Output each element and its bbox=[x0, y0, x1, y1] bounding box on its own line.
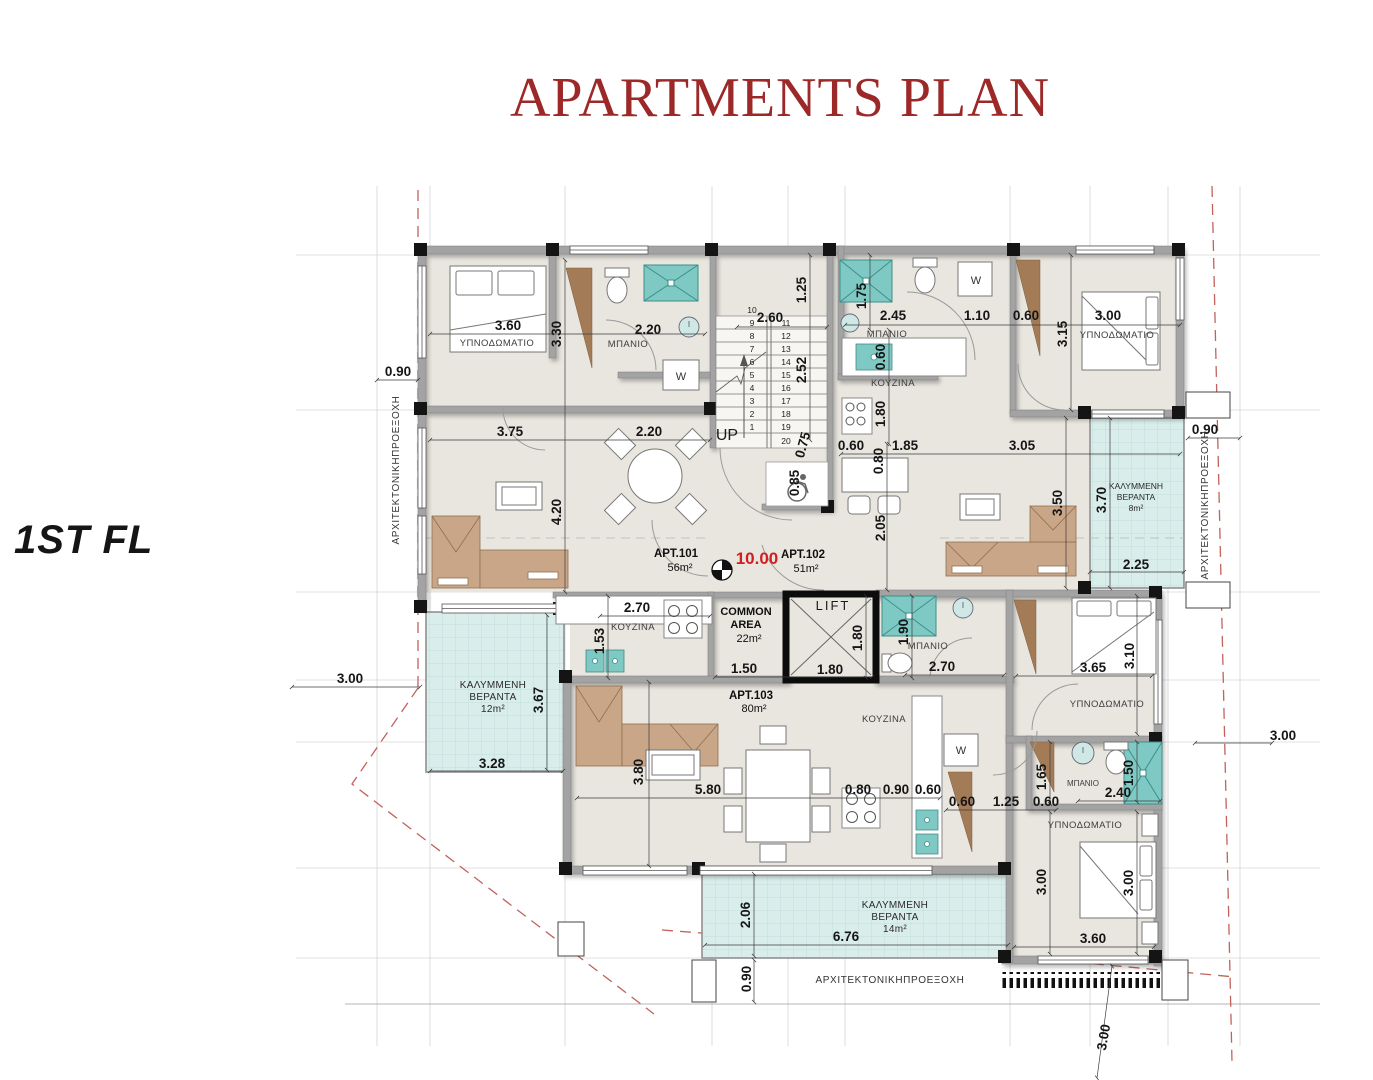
annotation-step: 13 bbox=[781, 344, 791, 354]
annotation-dim: 3.80 bbox=[631, 759, 646, 785]
annotation-room: ΚΟΥΖΙΝΑ bbox=[871, 378, 915, 389]
annotation-dim: 3.00 bbox=[1094, 1023, 1113, 1051]
annotation-dim: 0.60 bbox=[1013, 308, 1039, 323]
annotation-step: 19 bbox=[781, 422, 791, 432]
annotation-step: 4 bbox=[750, 383, 755, 393]
annotation-dim: 0.90 bbox=[385, 364, 411, 379]
projection-hatch-row bbox=[1000, 972, 1160, 988]
annotation-dim: 1.75 bbox=[854, 282, 869, 309]
annotation-aptarea: 80m² bbox=[741, 703, 766, 715]
annotation-step: 3 bbox=[750, 396, 755, 406]
annotation-dim: 1.10 bbox=[964, 308, 990, 323]
annotation-dim: 1.85 bbox=[892, 438, 919, 453]
annotation-dim: 3.30 bbox=[549, 321, 564, 347]
annotation-dim: 1.80 bbox=[850, 625, 865, 651]
annotation-wlabel: W bbox=[956, 745, 967, 757]
annotation-dim: 3.00 bbox=[337, 671, 363, 686]
annotation-dim: 2.52 bbox=[794, 357, 809, 383]
annotation-wlabel: W bbox=[676, 371, 687, 383]
annotation-dim: 1.50 bbox=[731, 661, 757, 676]
annotation-step: 9 bbox=[750, 318, 755, 328]
annotation-dim: 3.67 bbox=[531, 687, 546, 713]
annotation-room: ΚΟΥΖΙΝΑ bbox=[862, 714, 906, 725]
annotation-ver: ΚΑΛΥΜΜΕΝΗ bbox=[460, 680, 526, 691]
annotation-aptarea: 51m² bbox=[793, 563, 818, 575]
annotation-step: 8 bbox=[750, 331, 755, 341]
annotation-proj: ΑΡΧΙΤΕΚΤΟΝΙΚΗΠΡΟΕΞΟΧΗ bbox=[816, 975, 965, 986]
floor-plan-drawing: 3.603.302.200.902.601.252.521.752.451.10… bbox=[0, 0, 1373, 1080]
annotation-dim: 0.60 bbox=[1033, 794, 1059, 809]
annotation-aptarea: 56m² bbox=[667, 562, 692, 574]
annotation-dim: 1.80 bbox=[873, 401, 888, 427]
annotation-step: 7 bbox=[750, 344, 755, 354]
annotation-dim: 0.90 bbox=[739, 966, 754, 992]
annotation-proj: ΑΡΧΙΤΕΚΤΟΝΙΚΗΠΡΟΕΞΟΧΗ bbox=[1200, 431, 1211, 580]
annotation-ver: 14m² bbox=[883, 924, 907, 935]
annotation-wlabel: W bbox=[971, 275, 982, 287]
annotation-dim: 1.65 bbox=[1034, 763, 1049, 790]
annotation-dim: 0.60 bbox=[838, 438, 864, 453]
annotation-red: 10.00 bbox=[736, 549, 779, 568]
annotation-dim: 6.76 bbox=[833, 929, 860, 944]
annotation-ver: ΒΕΡΑΝΤΑ bbox=[871, 912, 918, 923]
annotation-step: 2 bbox=[750, 409, 755, 419]
annotation-dim: 1.80 bbox=[817, 662, 843, 677]
annotation-dim: 0.85 bbox=[787, 469, 802, 496]
annotation-dim: 2.20 bbox=[636, 424, 662, 439]
annotation-apt: APT.102 bbox=[781, 549, 825, 561]
annotation-common: COMMON bbox=[720, 606, 771, 618]
annotation-dim: 0.90 bbox=[883, 782, 909, 797]
annotation-dim: 3.15 bbox=[1055, 320, 1070, 347]
annotation-room: ΥΠΝΟΔΩΜΑΤΙΟ bbox=[460, 338, 534, 349]
annotation-dim: 2.70 bbox=[929, 659, 955, 674]
annotation-dim: 3.75 bbox=[497, 424, 524, 439]
annotation-dim: 3.00 bbox=[1095, 308, 1121, 323]
annotation-dim: 2.45 bbox=[880, 308, 907, 323]
annotation-dim: 2.70 bbox=[624, 600, 650, 615]
annotation-ver-s: 8m² bbox=[1129, 503, 1144, 513]
annotation-room: ΥΠΝΟΔΩΜΑΤΙΟ bbox=[1080, 330, 1154, 341]
annotation-apt: APT.103 bbox=[729, 690, 773, 702]
survey-level-marker bbox=[712, 560, 732, 580]
annotation-dim: 1.50 bbox=[1121, 760, 1136, 786]
annotation-dim: 0.80 bbox=[871, 448, 886, 474]
annotation-ver-s: ΚΑΛΥΜΜΕΝΗ bbox=[1109, 481, 1163, 491]
annotation-dim: 3.05 bbox=[1009, 438, 1036, 453]
annotation-dim: 3.50 bbox=[1050, 490, 1065, 516]
annotation-common: AREA bbox=[730, 619, 761, 631]
annotation-aptarea: 22m² bbox=[736, 633, 761, 645]
annotation-dim: 1.53 bbox=[592, 627, 607, 654]
annotation-step: 10 bbox=[747, 305, 757, 315]
annotation-dim: 2.40 bbox=[1105, 785, 1131, 800]
annotation-step: 15 bbox=[781, 370, 791, 380]
page: APARTMENTS PLAN 1ST FL bbox=[0, 0, 1373, 1080]
annotation-room: ΥΠΝΟΔΩΜΑΤΙΟ bbox=[1070, 699, 1144, 710]
annotation-dim: 3.70 bbox=[1094, 487, 1109, 513]
annotation-step: 14 bbox=[781, 357, 791, 367]
annotation-dim: 4.20 bbox=[549, 499, 564, 525]
annotation-dim: 0.60 bbox=[873, 344, 888, 370]
annotation-step: 17 bbox=[781, 396, 791, 406]
annotation-step: 20 bbox=[781, 436, 791, 446]
annotation-step: 16 bbox=[781, 383, 791, 393]
annotation-proj: ΑΡΧΙΤΕΚΤΟΝΙΚΗΠΡΟΕΞΟΧΗ bbox=[391, 396, 402, 545]
annotation-dim: 3.10 bbox=[1122, 643, 1137, 669]
annotation-dim: 0.60 bbox=[915, 782, 941, 797]
annotation-dim: 3.00 bbox=[1270, 728, 1296, 743]
annotation-dim: 2.20 bbox=[635, 322, 661, 337]
annotation-dim: 3.28 bbox=[479, 756, 506, 771]
annotation-apt: APT.101 bbox=[654, 548, 699, 560]
annotation-room: ΜΠΑΝΙΟ bbox=[867, 329, 907, 340]
annotation-dim: 2.25 bbox=[1123, 557, 1150, 572]
annotation-dim: 0.60 bbox=[949, 794, 975, 809]
annotation-step: 5 bbox=[750, 370, 755, 380]
annotation-step: 6 bbox=[750, 357, 755, 367]
annotation-step: 1 bbox=[750, 422, 755, 432]
annotation-dim: 3.00 bbox=[1121, 870, 1136, 896]
annotation-room: ΜΠΑΝΙΟ bbox=[608, 339, 648, 350]
annotation-dim: 2.06 bbox=[738, 901, 753, 928]
annotation-ver-s: ΒΕΡΑΝΤΑ bbox=[1117, 492, 1156, 502]
annotation-ver: 12m² bbox=[481, 704, 505, 715]
annotation-dim: 2.05 bbox=[873, 514, 888, 541]
annotation-dim: 2.60 bbox=[757, 310, 783, 325]
annotation-room-s: ΜΠΑΝΙΟ bbox=[1067, 779, 1099, 788]
annotation-step: 11 bbox=[782, 318, 791, 328]
annotation-lift: LIFT bbox=[816, 598, 851, 613]
annotation-dim: 5.80 bbox=[695, 782, 721, 797]
annotation-ver: ΚΑΛΥΜΜΕΝΗ bbox=[862, 900, 928, 911]
annotation-dim: 3.60 bbox=[495, 318, 521, 333]
annotation-room: ΜΠΑΝΙΟ bbox=[908, 641, 948, 652]
annotation-up: UP bbox=[716, 427, 738, 444]
annotation-dim: 0.80 bbox=[845, 782, 871, 797]
annotation-room: ΚΟΥΖΙΝΑ bbox=[611, 622, 655, 633]
annotation-dim: 3.00 bbox=[1034, 869, 1049, 895]
annotation-dim: 3.65 bbox=[1080, 660, 1107, 675]
annotation-dim: 3.60 bbox=[1080, 931, 1106, 946]
annotation-dim: 1.25 bbox=[993, 794, 1020, 809]
annotation-dim: 1.25 bbox=[794, 276, 809, 303]
annotation-ver: ΒΕΡΑΝΤΑ bbox=[469, 692, 516, 703]
annotation-room: ΥΠΝΟΔΩΜΑΤΙΟ bbox=[1048, 820, 1122, 831]
annotation-step: 18 bbox=[781, 409, 791, 419]
annotation-step: 12 bbox=[781, 331, 791, 341]
